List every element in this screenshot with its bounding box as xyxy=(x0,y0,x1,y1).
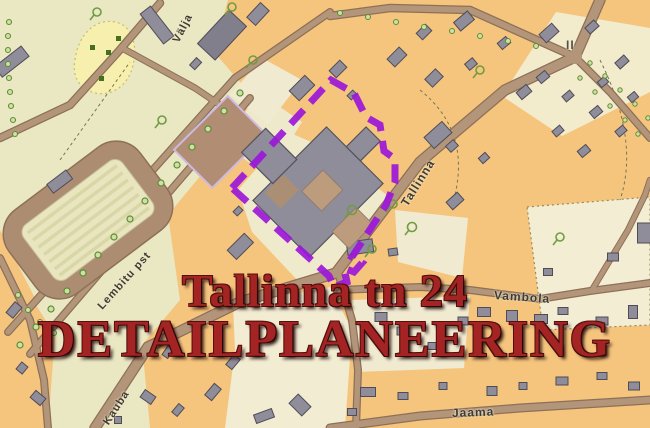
street-label-jaama: Jaama xyxy=(452,405,495,420)
detail-plan-map: Välja Tallinna Lembitu pst Vambola Kauba… xyxy=(0,0,650,428)
map-canvas xyxy=(0,0,650,428)
storey-marking: II xyxy=(566,38,575,52)
